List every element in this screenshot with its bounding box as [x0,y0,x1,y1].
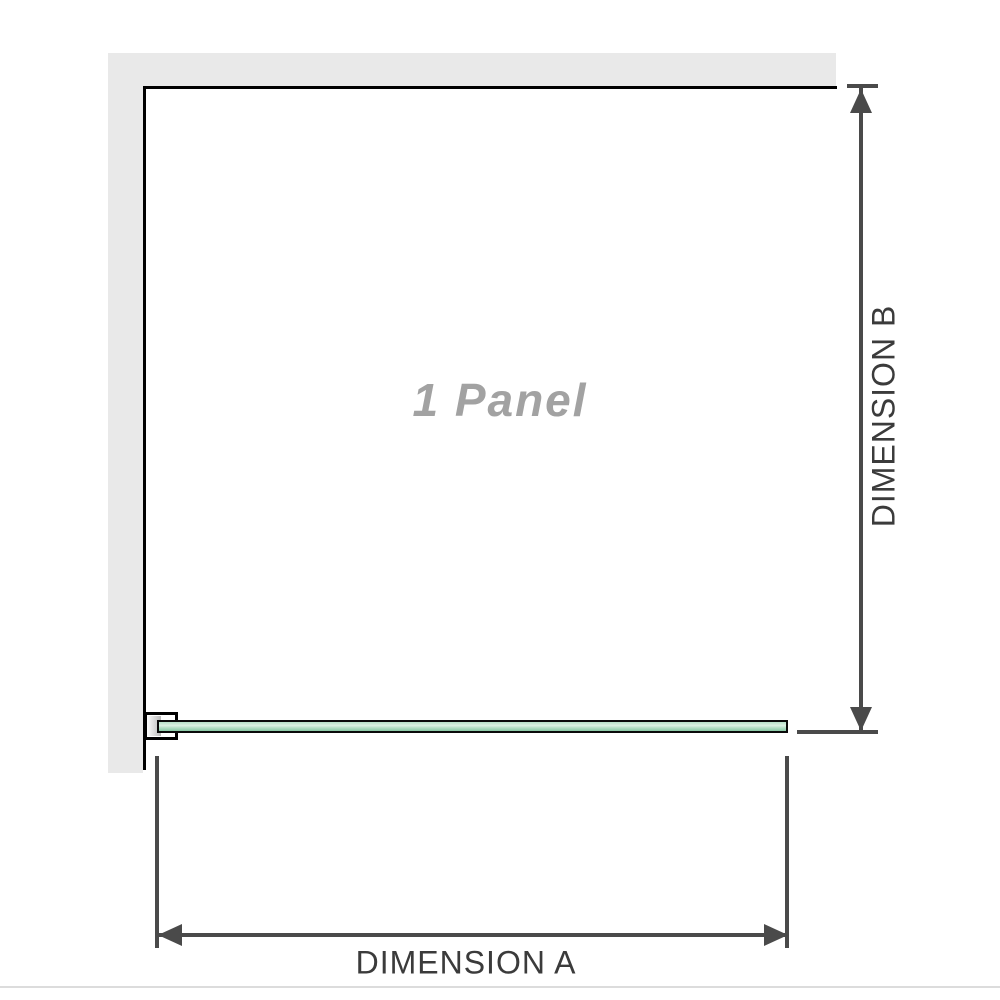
panel-outline-left [143,86,146,770]
dim-b-line [859,88,863,733]
dim-a-extension-right [785,756,789,948]
wall-top [108,53,836,86]
wall-left [108,53,143,773]
dimension-b-label: DIMENSION B [866,305,903,528]
panel-outline-top [143,86,837,89]
arrow-left-icon [158,924,182,946]
arrow-down-icon [850,707,872,731]
diagram-canvas: 1 Panel DIMENSION B DIMENSION A [0,0,1000,1000]
dim-a-extension-left [155,756,159,948]
panel-count-label: 1 Panel [412,373,587,427]
glass-panel [157,720,788,733]
dimension-a-label: DIMENSION A [356,945,577,982]
dim-a-line [158,933,788,937]
arrow-right-icon [764,924,788,946]
page-baseline [0,986,1000,988]
arrow-up-icon [850,89,872,113]
